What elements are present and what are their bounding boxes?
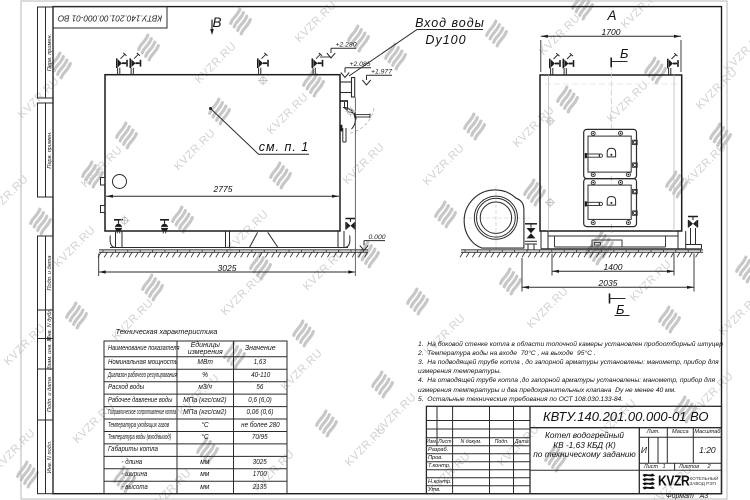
svg-text:+2.280: +2.280 bbox=[336, 42, 357, 49]
svg-text:Подп. и дата: Подп. и дата bbox=[47, 377, 53, 412]
svg-text:0.000: 0.000 bbox=[369, 234, 386, 241]
svg-text:Инв. N подл.: Инв. N подл. bbox=[47, 440, 53, 473]
svg-text:+1.977: +1.977 bbox=[371, 69, 392, 76]
svg-text:Перв. примен.: Перв. примен. bbox=[47, 131, 53, 168]
svg-text:КВТУ.140.201.00.000-01 ВО: КВТУ.140.201.00.000-01 ВО bbox=[57, 14, 162, 23]
svg-text:Подп. и дата: Подп. и дата bbox=[47, 255, 53, 290]
svg-text:Взам. инв. N: Взам. инв. N bbox=[47, 337, 53, 371]
svg-text:Инв. N дубл.: Инв. N дубл. bbox=[47, 308, 53, 340]
svg-text:Перв. примен.: Перв. примен. bbox=[47, 34, 53, 71]
svg-text:+2.085: +2.085 bbox=[350, 61, 371, 68]
